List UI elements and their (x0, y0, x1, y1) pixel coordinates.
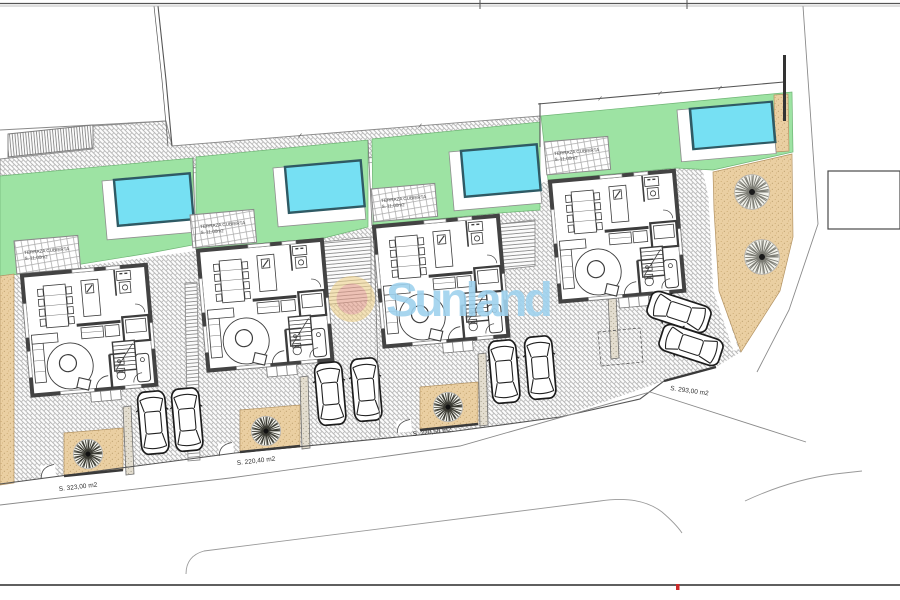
svg-text:Sunland: Sunland (386, 274, 553, 327)
